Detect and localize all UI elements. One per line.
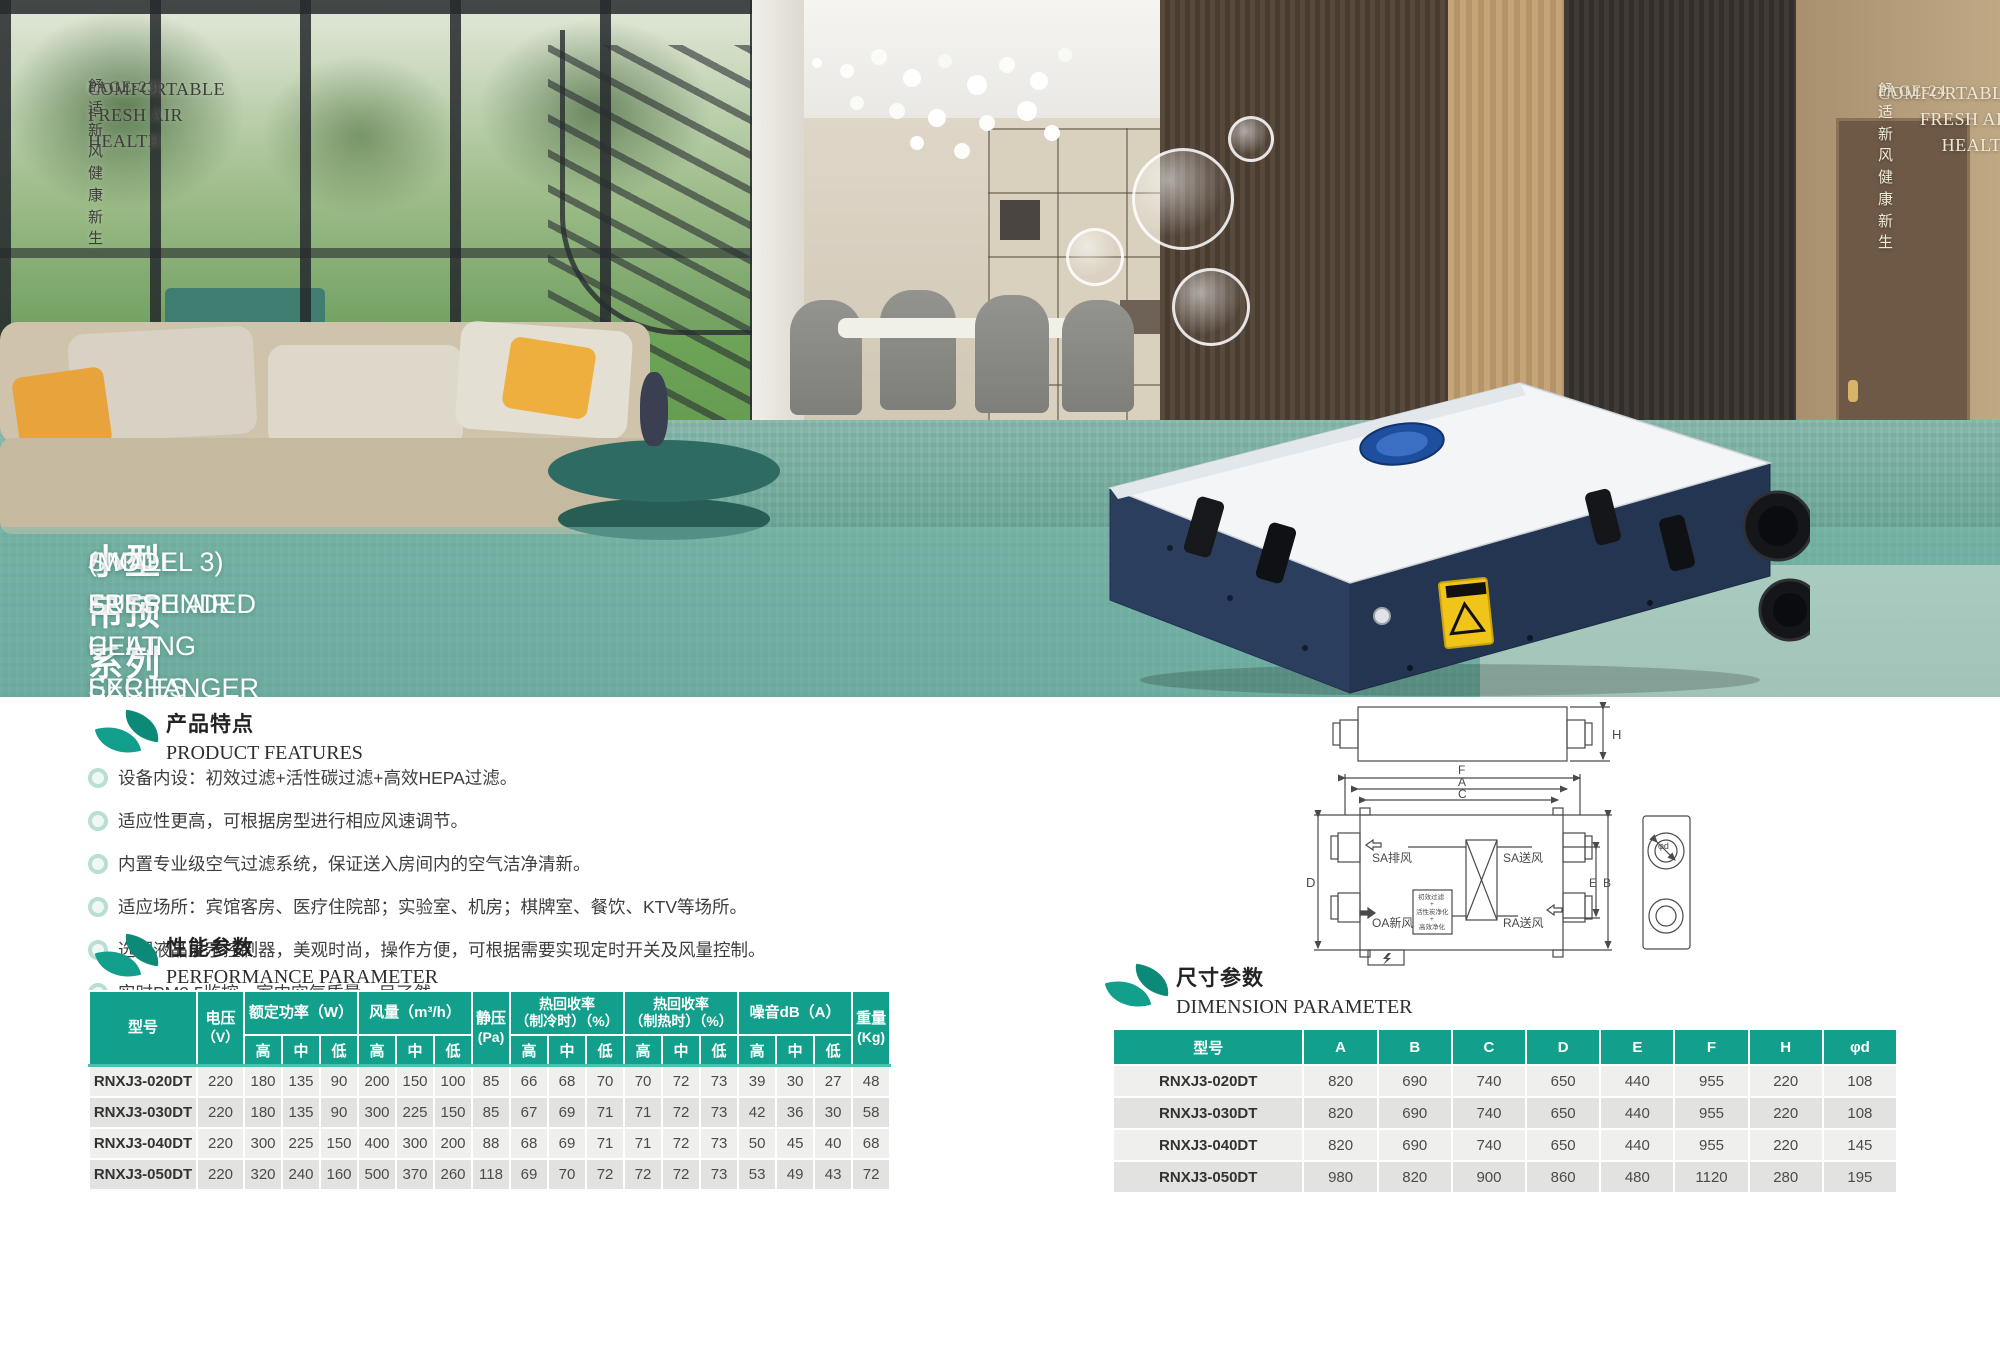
filter-plus-1: + [1430,901,1434,908]
table-cell: 108 [1823,1065,1897,1097]
table-cell: 108 [1823,1097,1897,1129]
col-heat-recovery-cooling: 热回收率（制冷时）（%） [510,991,624,1035]
sofa-seat [0,438,650,534]
dining-chair [880,290,956,410]
table-cell: 135 [282,1097,320,1128]
table-cell: 145 [1823,1129,1897,1161]
table-cell: 650 [1526,1065,1600,1097]
product-photo-heat-exchanger [1050,348,1810,696]
table-cell: 42 [738,1097,776,1128]
table-cell: 49 [776,1159,814,1190]
table-cell: 36 [776,1097,814,1128]
table-cell: 200 [434,1128,472,1159]
table-cell: 72 [662,1159,700,1190]
table-cell: 220 [197,1128,244,1159]
table-row: RNXJ3-030DT820690740650440955220108 [1113,1097,1897,1129]
table-cell: 68 [852,1128,890,1159]
filter-plus-2: + [1430,916,1434,923]
table-cell: RNXJ3-040DT [1113,1129,1303,1161]
feature-text: 适应性更高，可根据房型进行相应风速调节。 [118,808,468,833]
performance-table-body: RNXJ3-020DT22018013590200150100856668707… [89,1066,890,1191]
feature-item: 适应性更高，可根据房型进行相应风速调节。 [88,799,988,842]
air-bubble [1172,268,1250,346]
table-cell: RNXJ3-050DT [1113,1161,1303,1193]
table-cell: 71 [624,1128,662,1159]
table-cell: 370 [396,1159,434,1190]
air-bubble [1132,148,1234,250]
dim-label-c: C [1458,787,1467,801]
table-cell: 72 [852,1159,890,1190]
table-cell: 88 [472,1128,510,1159]
dimension-table-body: RNXJ3-020DT820690740650440955220108RNXJ3… [1113,1065,1897,1193]
table-cell: 220 [197,1066,244,1098]
table-cell: RNXJ3-050DT [89,1159,197,1190]
col-static-pressure: 静压(Pa) [472,991,510,1066]
dim-col: F [1674,1029,1748,1065]
table-row: RNXJ3-020DT820690740650440955220108 [1113,1065,1897,1097]
table-cell: RNXJ3-020DT [1113,1065,1303,1097]
table-row: RNXJ3-020DT22018013590200150100856668707… [89,1066,890,1098]
sub-low: 低 [700,1035,738,1066]
table-cell: 45 [776,1128,814,1159]
sub-low: 低 [814,1035,852,1066]
table-cell: 690 [1378,1065,1452,1097]
table-cell: 955 [1674,1129,1748,1161]
bullet-ring-icon [88,768,108,788]
table-cell: 67 [510,1097,548,1128]
table-cell: 66 [510,1066,548,1098]
table-cell: RNXJ3-030DT [1113,1097,1303,1129]
dimension-diagram: H F A C D E B SA排风 SA送风 OA新风 RA送风 初效过滤 +… [1300,690,1720,970]
table-cell: 980 [1303,1161,1377,1193]
table-cell: 73 [700,1066,738,1098]
sub-high: 高 [244,1035,282,1066]
table-cell: 955 [1674,1097,1748,1129]
sub-mid: 中 [662,1035,700,1066]
airflow-label-oa-fresh: OA新风 [1372,915,1413,930]
dim-col: 型号 [1113,1029,1303,1065]
table-cell: 71 [586,1128,624,1159]
feature-item: 内置专业级空气过滤系统，保证送入房间内的空气洁净清新。 [88,842,988,885]
shelf-decor [1000,200,1040,240]
table-cell: 27 [814,1066,852,1098]
table-row: RNXJ3-040DT22030022515040030020088686971… [89,1128,890,1159]
feature-text: 内置专业级空气过滤系统，保证送入房间内的空气洁净清新。 [118,851,591,876]
table-cell: 220 [1749,1065,1823,1097]
table-cell: 53 [738,1159,776,1190]
bullet-ring-icon [88,854,108,874]
dim-col: E [1600,1029,1674,1065]
col-weight: 重量(Kg) [852,991,890,1066]
sub-high: 高 [738,1035,776,1066]
table-cell: 220 [197,1159,244,1190]
dim-label-phid: φd [1658,841,1669,851]
table-cell: 150 [320,1128,358,1159]
table-cell: 72 [662,1066,700,1098]
table-cell: 220 [197,1097,244,1128]
table-cell: 180 [244,1066,282,1098]
airflow-label-ra-return: RA送风 [1503,915,1544,930]
feature-item: 适应场所：宾馆客房、医疗住院部；实验室、机房；棋牌室、餐饮、KTV等场所。 [88,885,988,928]
staircase-railing [560,30,755,335]
filter-text-2: 活性炭净化 [1416,907,1449,916]
sub-low: 低 [434,1035,472,1066]
table-cell: 300 [358,1097,396,1128]
table-cell: 260 [434,1159,472,1190]
table-cell: 30 [776,1066,814,1098]
table-cell: 690 [1378,1129,1452,1161]
table-cell: 72 [586,1159,624,1190]
table-cell: 69 [548,1128,586,1159]
performance-table: 型号 电压（V） 额定功率（W） 风量（m³/h） 静压(Pa) 热回收率（制冷… [88,990,891,1191]
window-beam [0,0,765,14]
table-cell: 85 [472,1097,510,1128]
table-cell: 440 [1600,1065,1674,1097]
table-cell: 820 [1378,1161,1452,1193]
table-cell: 100 [434,1066,472,1098]
table-cell: 955 [1674,1065,1748,1097]
table-cell: 690 [1378,1097,1452,1129]
dim-label-b: B [1603,876,1611,890]
table-cell: 160 [320,1159,358,1190]
dimension-heading-en: DIMENSION PARAMETER [1176,996,1413,1019]
bullet-ring-icon [88,811,108,831]
table-cell: 225 [396,1097,434,1128]
table-cell: 73 [700,1097,738,1128]
table-cell: 135 [282,1066,320,1098]
table-cell: 650 [1526,1097,1600,1129]
table-cell: 240 [282,1159,320,1190]
dim-col: φd [1823,1029,1897,1065]
airflow-label-sa-supply: SA送风 [1503,850,1543,865]
table-cell: 1120 [1674,1161,1748,1193]
table-cell: 480 [1600,1161,1674,1193]
table-cell: 39 [738,1066,776,1098]
table-cell: RNXJ3-040DT [89,1128,197,1159]
sub-mid: 中 [396,1035,434,1066]
table-cell: 118 [472,1159,510,1190]
performance-heading-cn: 性能参数 [166,932,438,962]
header-subtitle: 舒适新风 健康新生 [88,76,105,250]
table-cell: 72 [662,1097,700,1128]
table-cell: 400 [358,1128,396,1159]
features-heading-cn: 产品特点 [166,708,363,738]
table-cell: 650 [1526,1129,1600,1161]
table-cell: 740 [1452,1097,1526,1129]
table-cell: 40 [814,1128,852,1159]
dim-col: A [1303,1029,1377,1065]
table-cell: 820 [1303,1097,1377,1129]
sub-mid: 中 [776,1035,814,1066]
table-row: RNXJ3-040DT820690740650440955220145 [1113,1129,1897,1161]
coffee-table [548,440,780,502]
table-cell: 150 [434,1097,472,1128]
catalog-page: COMFORTABLE FRESH AIR HEALTH 舒适新风 健康新生 P… [0,0,2000,1366]
bullet-ring-icon [88,897,108,917]
table-cell: 58 [852,1097,890,1128]
table-cell: 860 [1526,1161,1600,1193]
dim-col: H [1749,1029,1823,1065]
table-cell: 43 [814,1159,852,1190]
sub-mid: 中 [282,1035,320,1066]
table-cell: 73 [700,1128,738,1159]
sub-low: 低 [586,1035,624,1066]
table-cell: 48 [852,1066,890,1098]
table-cell: 740 [1452,1129,1526,1161]
dining-chair [975,295,1049,413]
table-cell: 900 [1452,1161,1526,1193]
page-number: PAGE·23 [88,76,157,99]
dim-label-e: E [1589,876,1597,890]
table-cell: 200 [358,1066,396,1098]
col-airflow: 风量（m³/h） [358,991,472,1035]
feature-text: 适应场所：宾馆客房、医疗住院部；实验室、机房；棋牌室、餐饮、KTV等场所。 [118,894,747,919]
table-cell: 30 [814,1097,852,1128]
air-bubble [1228,116,1274,162]
table-cell: 69 [510,1159,548,1190]
table-cell: RNXJ3-030DT [89,1097,197,1128]
dim-col: D [1526,1029,1600,1065]
table-cell: 73 [700,1159,738,1190]
table-cell: 320 [244,1159,282,1190]
table-cell: 150 [396,1066,434,1098]
table-cell: 440 [1600,1129,1674,1161]
feature-item: 设备内设：初效过滤+活性碳过滤+高效HEPA过滤。 [88,756,988,799]
table-cell: 70 [624,1066,662,1098]
sub-high: 高 [510,1035,548,1066]
product-title-en-line2: (MODEL 3) FRESH AIR HEAT EXCHANGER [88,542,259,697]
table-cell: 300 [396,1128,434,1159]
table-row: RNXJ3-030DT22018013590300225150856769717… [89,1097,890,1128]
sub-mid: 中 [548,1035,586,1066]
table-cell: 500 [358,1159,396,1190]
table-row: RNXJ3-050DT22032024016050037026011869707… [89,1159,890,1190]
table-cell: 90 [320,1097,358,1128]
table-cell: 180 [244,1097,282,1128]
filter-text-1: 初效过滤 [1418,892,1445,901]
table-cell: 71 [624,1097,662,1128]
table-row: RNXJ3-050DT9808209008604801120280195 [1113,1161,1897,1193]
door-handle [1848,380,1858,402]
feature-text: 设备内设：初效过滤+活性碳过滤+高效HEPA过滤。 [118,765,517,790]
performance-table-header: 型号 电压（V） 额定功率（W） 风量（m³/h） 静压(Pa) 热回收率（制冷… [89,991,890,1066]
table-cell: 195 [1823,1161,1897,1193]
dimension-heading: 尺寸参数 DIMENSION PARAMETER [1176,962,1413,1019]
table-cell: 280 [1749,1161,1823,1193]
table-cell: 300 [244,1128,282,1159]
sub-high: 高 [624,1035,662,1066]
chandelier [812,58,822,68]
sub-low: 低 [320,1035,358,1066]
table-cell: 225 [282,1128,320,1159]
table-cell: 72 [624,1159,662,1190]
table-cell: 740 [1452,1065,1526,1097]
filter-text-3: 高效净化 [1419,922,1446,931]
table-cell: 820 [1303,1129,1377,1161]
page-number: PAGE·24 [1878,80,1947,103]
airflow-label-sa-exhaust: SA排风 [1372,851,1412,865]
dim-label-d: D [1306,875,1315,890]
col-model: 型号 [89,991,197,1066]
table-cell: RNXJ3-020DT [89,1066,197,1098]
performance-heading: 性能参数 PERFORMANCE PARAMETER [166,932,438,989]
leaf-icon [98,712,162,758]
leaf-icon [98,936,162,982]
orange-pillow [501,336,597,421]
dimension-table-header: 型号 A B C D E F H φd [1113,1029,1897,1065]
table-cell: 70 [548,1159,586,1190]
table-cell: 71 [586,1097,624,1128]
sub-high: 高 [358,1035,396,1066]
table-cell: 70 [586,1066,624,1098]
table-cell: 50 [738,1128,776,1159]
performance-heading-en: PERFORMANCE PARAMETER [166,966,438,989]
col-heat-recovery-heating: 热回收率（制热时）（%） [624,991,738,1035]
table-cell: 220 [1749,1129,1823,1161]
col-voltage: 电压（V） [197,991,244,1066]
table-cell: 72 [662,1128,700,1159]
sofa-cushion [268,345,463,447]
leaf-icon [1108,966,1172,1012]
table-cell: 68 [510,1128,548,1159]
dim-col: C [1452,1029,1526,1065]
table-cell: 820 [1303,1065,1377,1097]
header-subtitle: 舒适新风 健康新生 [1878,80,1895,254]
table-cell: 68 [548,1066,586,1098]
dim-label-h: H [1612,727,1621,742]
table-cell: 90 [320,1066,358,1098]
table-cell: 440 [1600,1097,1674,1129]
col-rated-power: 额定功率（W） [244,991,358,1035]
table-cell: 85 [472,1066,510,1098]
table-cell: 69 [548,1097,586,1128]
dim-col: B [1378,1029,1452,1065]
dimension-table: 型号 A B C D E F H φd RNXJ3-020DT820690740… [1112,1028,1898,1194]
vase [640,372,668,446]
col-noise: 噪音dB（A） [738,991,852,1035]
hero-photo: COMFORTABLE FRESH AIR HEALTH 舒适新风 健康新生 P… [0,0,2000,697]
air-bubble [1066,228,1124,286]
table-cell: 220 [1749,1097,1823,1129]
